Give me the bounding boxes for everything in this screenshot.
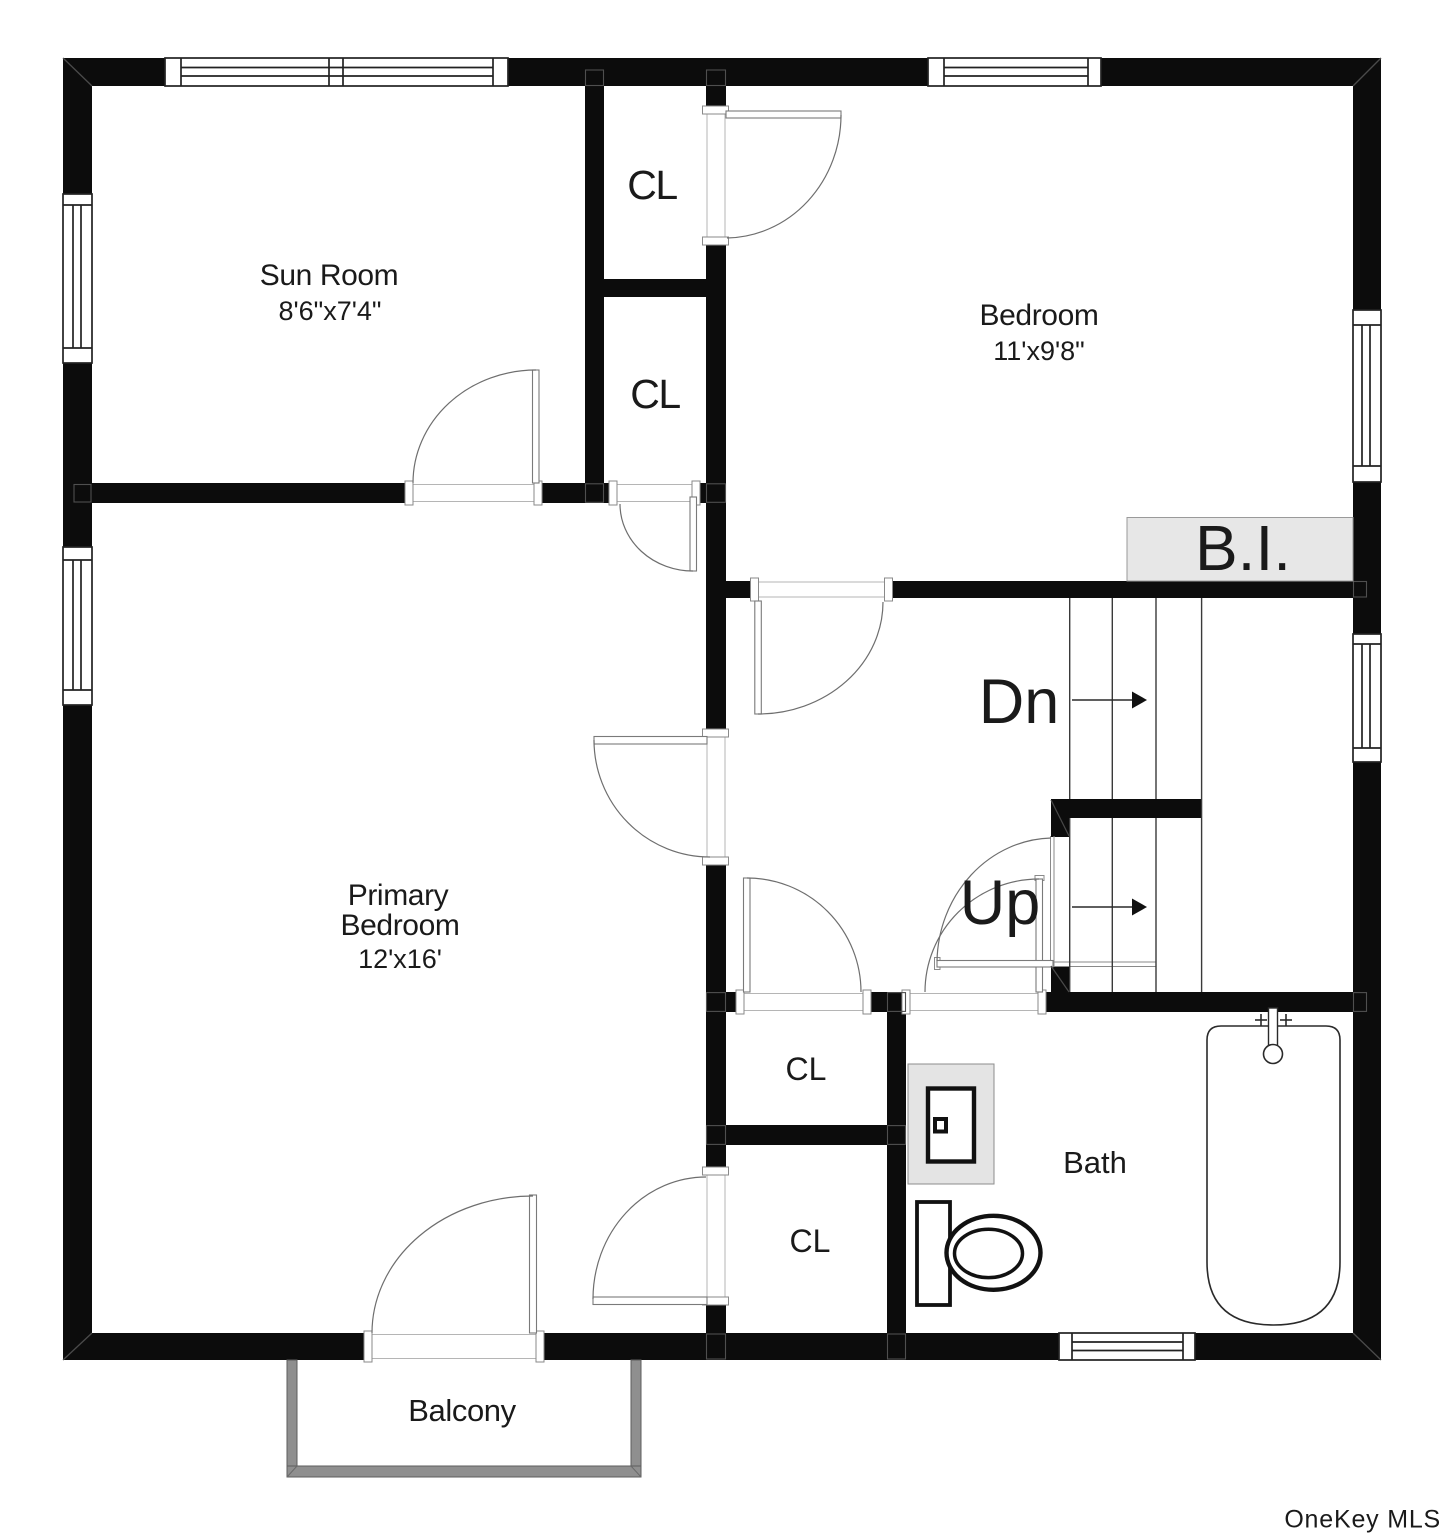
svg-text:11'x9'8": 11'x9'8" xyxy=(993,336,1084,366)
svg-text:CL: CL xyxy=(630,371,680,417)
svg-text:Up: Up xyxy=(960,868,1041,938)
svg-text:Bath: Bath xyxy=(1063,1145,1127,1180)
svg-text:OneKey MLS: OneKey MLS xyxy=(1284,1506,1441,1534)
svg-text:12'x16': 12'x16' xyxy=(358,944,442,974)
svg-text:8'6"x7'4": 8'6"x7'4" xyxy=(278,296,381,326)
svg-text:Bedroom: Bedroom xyxy=(980,299,1099,332)
svg-text:CL: CL xyxy=(786,1051,827,1087)
svg-text:B.I.: B.I. xyxy=(1195,512,1291,584)
svg-text:Dn: Dn xyxy=(979,667,1060,737)
svg-text:Primary: Primary xyxy=(348,879,449,912)
svg-text:CL: CL xyxy=(627,162,677,208)
svg-text:CL: CL xyxy=(790,1223,831,1259)
svg-text:Bedroom: Bedroom xyxy=(341,909,460,942)
svg-text:Sun Room: Sun Room xyxy=(260,259,399,292)
svg-text:Balcony: Balcony xyxy=(408,1393,516,1428)
